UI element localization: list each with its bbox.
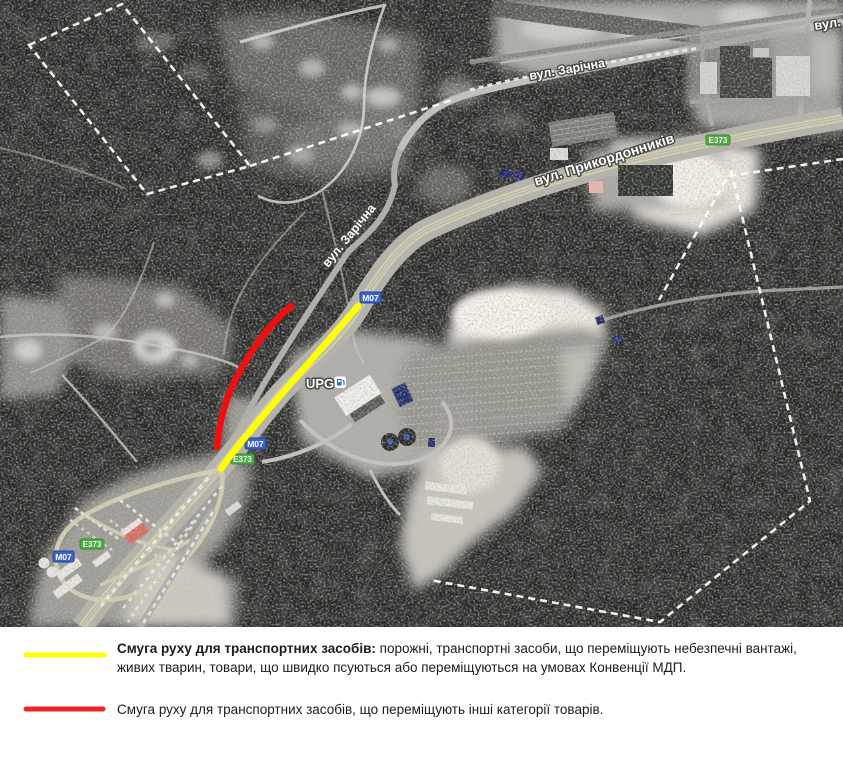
svg-text:М07: М07 xyxy=(55,552,72,562)
svg-text:М07: М07 xyxy=(362,293,379,303)
svg-text:Е373: Е373 xyxy=(233,455,252,464)
svg-text:UPG: UPG xyxy=(306,376,334,391)
svg-text:Е373: Е373 xyxy=(83,540,102,549)
svg-text:М07: М07 xyxy=(247,439,264,449)
svg-text:Е373: Е373 xyxy=(709,136,728,145)
